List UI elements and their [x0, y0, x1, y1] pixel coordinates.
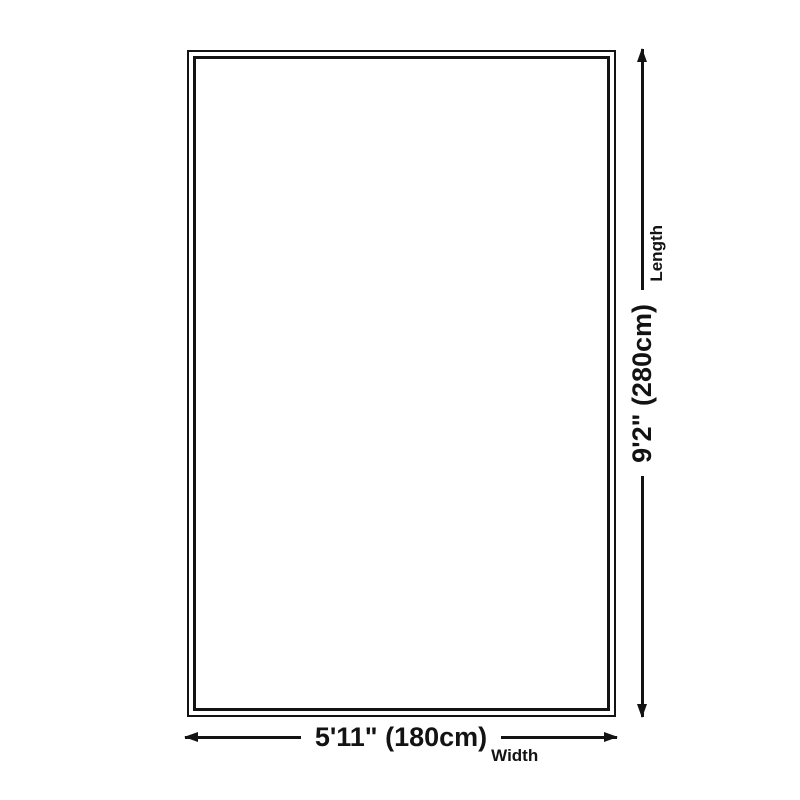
arrowhead-right-icon	[604, 732, 618, 742]
arrowhead-down-icon	[637, 704, 647, 718]
length-value-group: Length 9'2" (280cm)	[627, 290, 658, 477]
arrowhead-left-icon	[184, 732, 198, 742]
arrowhead-up-icon	[637, 48, 647, 62]
arrow-down-icon	[641, 476, 644, 717]
arrow-up-icon	[641, 49, 644, 290]
dimension-diagram: Length 9'2" (280cm) 5'11" (180cm) Width	[0, 0, 800, 800]
length-axis-label: Length	[647, 225, 667, 282]
width-value-group: 5'11" (180cm) Width	[301, 722, 501, 753]
length-value: 9'2" (280cm)	[627, 304, 658, 463]
arrow-right-icon	[501, 736, 617, 739]
width-dimension: 5'11" (180cm) Width	[185, 715, 617, 759]
width-value: 5'11" (180cm)	[315, 722, 487, 753]
arrow-left-icon	[185, 736, 301, 739]
length-dimension: Length 9'2" (280cm)	[620, 49, 664, 717]
rug-outline-inner	[193, 56, 610, 711]
rug-outline-outer	[187, 50, 616, 717]
width-axis-label: Width	[491, 746, 538, 766]
